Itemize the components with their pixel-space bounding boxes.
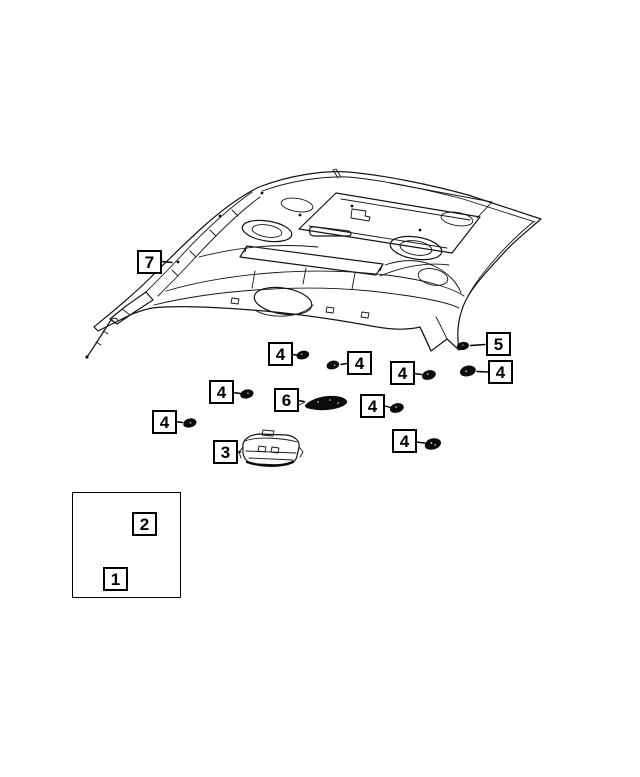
clip-part: [389, 402, 405, 414]
callout-box-5: 5: [486, 332, 511, 356]
callout-box-4-f: 4: [360, 394, 385, 418]
clip-part: [326, 360, 340, 371]
callout-box-7: 7: [137, 250, 162, 274]
callout-box-4-g: 4: [152, 410, 177, 434]
clip-part: [296, 350, 310, 361]
lamp-lens-part: [299, 396, 347, 410]
parts-diagram-page: 7 4 4 4 5 4 4 6 4 4 4 3 2 1: [0, 0, 640, 777]
clip-part: [424, 437, 443, 451]
clip-part: [421, 369, 437, 381]
callout-box-4-a: 4: [268, 342, 293, 366]
callout-box-4-e: 4: [209, 380, 234, 404]
clip-part: [459, 364, 477, 377]
overhead-console-part: [239, 430, 303, 466]
callout-box-3: 3: [213, 440, 238, 464]
callout-box-4-c: 4: [390, 361, 415, 385]
callout-box-1: 1: [103, 567, 128, 591]
clip-part: [239, 388, 254, 399]
callout-box-4-h: 4: [392, 429, 417, 453]
callout-box-2: 2: [132, 512, 157, 536]
clip-part: [182, 417, 197, 428]
callout-box-6: 6: [274, 388, 299, 412]
side-cable-drawing: [85, 318, 118, 358]
callout-box-4-b: 4: [347, 351, 372, 375]
callout-box-4-d: 4: [488, 360, 513, 384]
diagram-canvas: [0, 0, 640, 777]
